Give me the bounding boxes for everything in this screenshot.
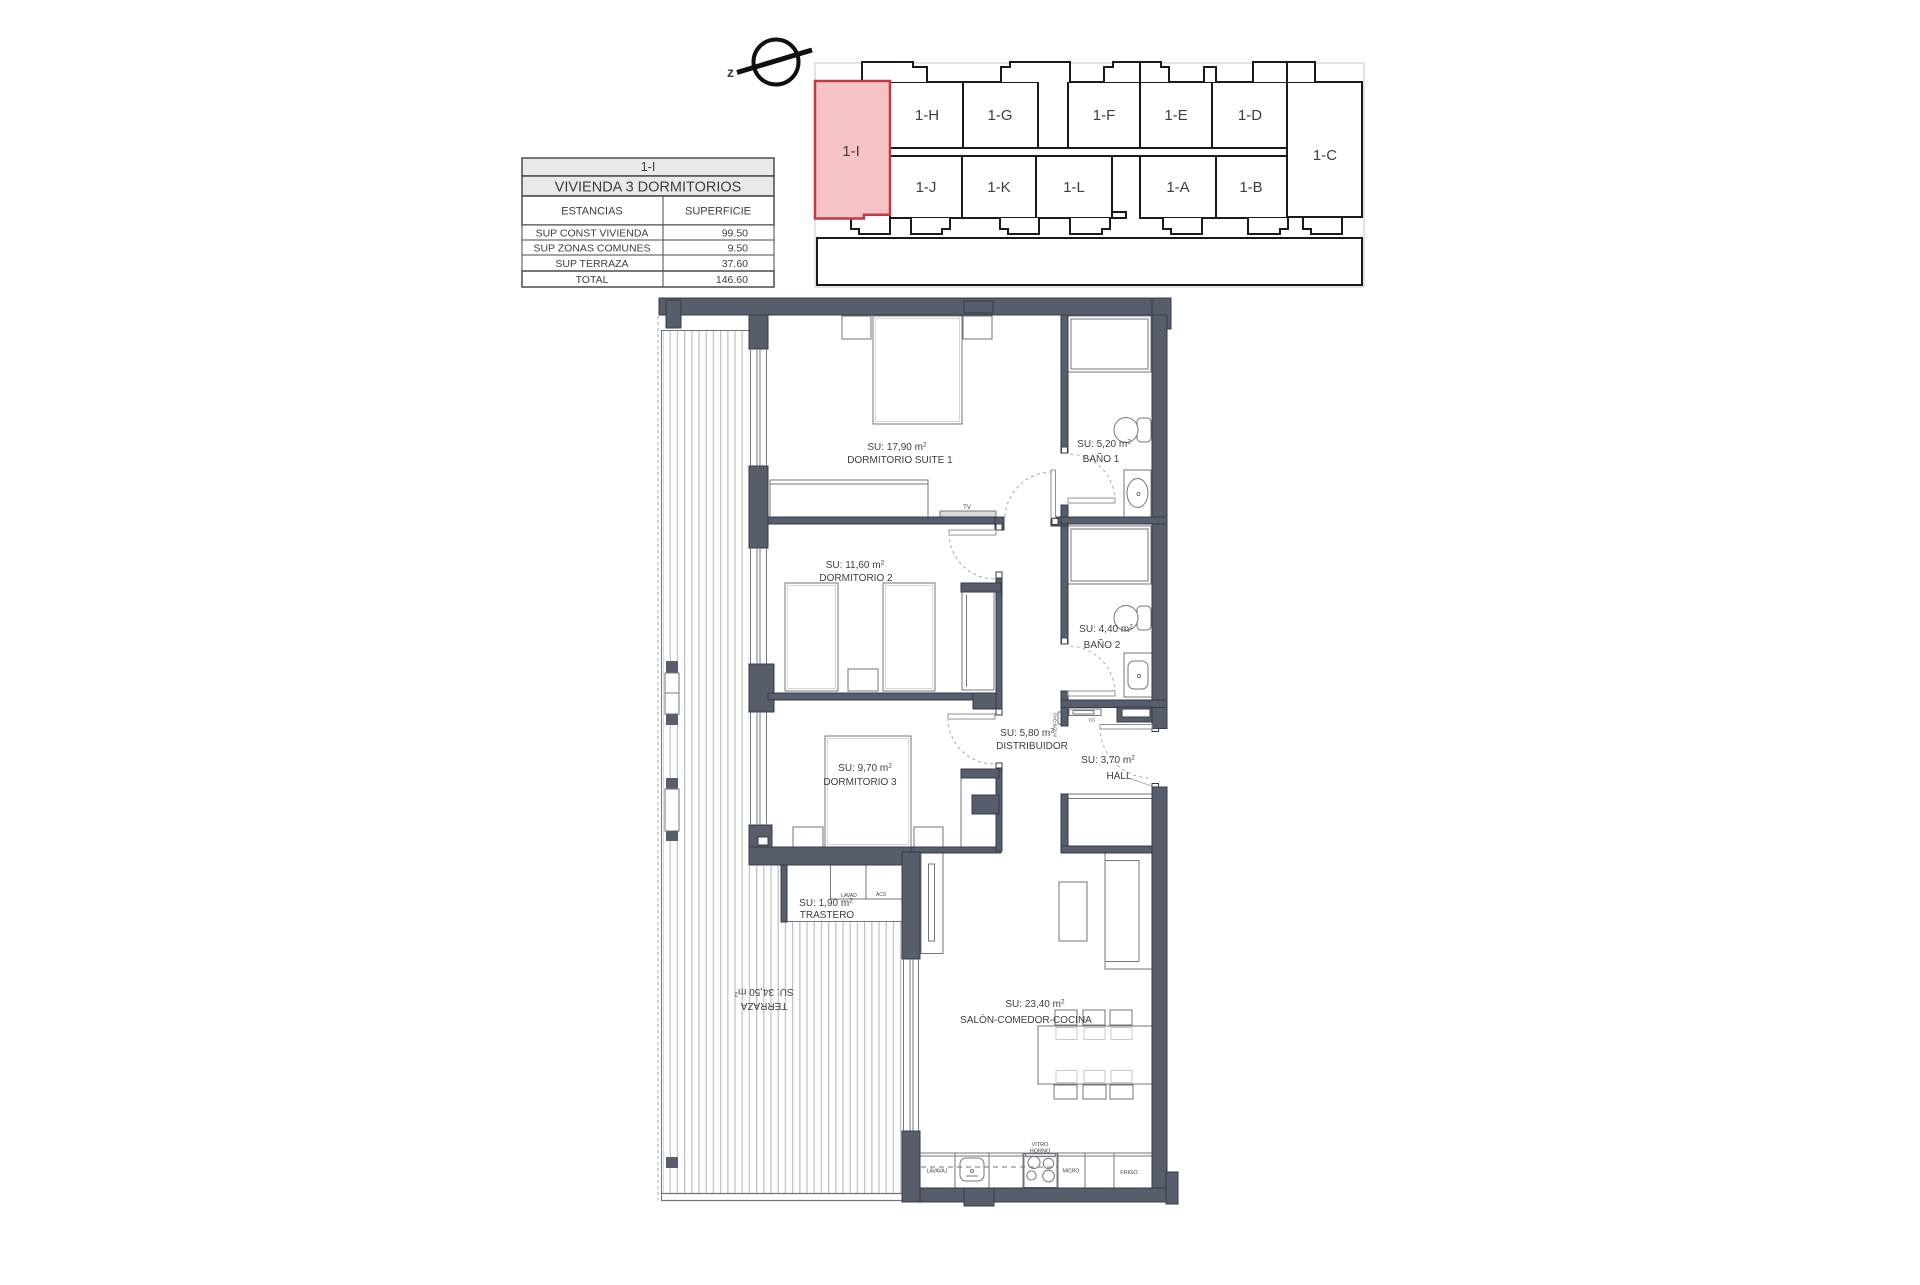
- svg-text:TRASTERO: TRASTERO: [800, 910, 855, 921]
- svg-text:ACS: ACS: [876, 892, 887, 898]
- svg-text:SU: 34,50 m2: SU: 34,50 m2: [734, 986, 794, 998]
- svg-text:1-A: 1-A: [1166, 179, 1189, 196]
- svg-text:z: z: [727, 64, 734, 80]
- svg-text:SU: 4,40 m2: SU: 4,40 m2: [1079, 624, 1133, 636]
- svg-text:TV: TV: [963, 505, 971, 511]
- svg-text:1-B: 1-B: [1239, 179, 1262, 196]
- svg-text:1-G: 1-G: [987, 107, 1012, 124]
- svg-text:HORNO: HORNO: [1030, 1149, 1051, 1155]
- svg-text:99.50: 99.50: [722, 228, 748, 240]
- svg-text:1-C: 1-C: [1313, 147, 1337, 164]
- svg-text:SALÓN-COMEDOR-COCINA: SALÓN-COMEDOR-COCINA: [960, 1013, 1092, 1026]
- svg-text:BAÑO 1: BAÑO 1: [1083, 452, 1120, 465]
- svg-text:9.50: 9.50: [728, 243, 749, 255]
- svg-text:SUP CONST VIVIENDA: SUP CONST VIVIENDA: [536, 228, 649, 240]
- svg-text:SU: 9,70 m2: SU: 9,70 m2: [838, 763, 892, 775]
- svg-text:FRIGO: FRIGO: [1120, 1170, 1138, 1176]
- svg-text:1-D: 1-D: [1238, 107, 1262, 124]
- svg-text:HALL: HALL: [1106, 771, 1131, 782]
- svg-text:LAVAD: LAVAD: [841, 893, 857, 899]
- svg-text:TOTAL: TOTAL: [576, 274, 609, 286]
- svg-text:1-E: 1-E: [1164, 107, 1187, 124]
- svg-text:DORMITORIO 2: DORMITORIO 2: [819, 573, 893, 584]
- svg-text:SU: 11,60 m2: SU: 11,60 m2: [826, 560, 885, 572]
- svg-text:MICRO: MICRO: [1063, 1169, 1080, 1175]
- svg-text:1-J: 1-J: [916, 179, 937, 196]
- svg-text:1-I: 1-I: [641, 160, 656, 174]
- svg-text:DORMITORIO SUITE 1: DORMITORIO SUITE 1: [847, 455, 953, 466]
- svg-text:CG: CG: [1089, 718, 1096, 723]
- svg-text:SU: 23,40 m2: SU: 23,40 m2: [1005, 999, 1065, 1011]
- svg-text:SU: 5,20 m2: SU: 5,20 m2: [1077, 439, 1131, 451]
- svg-text:SU: 5,80 m2: SU: 5,80 m2: [1000, 728, 1054, 740]
- svg-text:SU: 1,90 m2: SU: 1,90 m2: [799, 898, 853, 910]
- svg-text:1-F: 1-F: [1093, 107, 1116, 124]
- svg-text:SU: 17,90 m2: SU: 17,90 m2: [867, 442, 927, 454]
- svg-text:DISTRIBUIDOR: DISTRIBUIDOR: [996, 741, 1068, 752]
- svg-text:SUP ZONAS COMUNES: SUP ZONAS COMUNES: [533, 243, 650, 255]
- svg-text:SUPERFICIE: SUPERFICIE: [685, 206, 751, 218]
- svg-text:SUP TERRAZA: SUP TERRAZA: [555, 258, 628, 270]
- svg-text:LAVAVAJ: LAVAVAJ: [927, 1169, 948, 1175]
- svg-text:INTERFONO: INTERFONO: [1053, 712, 1058, 737]
- svg-text:TERRAZA: TERRAZA: [740, 1000, 787, 1011]
- svg-text:VITRO: VITRO: [1032, 1142, 1050, 1148]
- svg-text:1-H: 1-H: [915, 107, 939, 124]
- svg-text:37.60: 37.60: [722, 258, 748, 270]
- svg-text:SU: 3,70 m2: SU: 3,70 m2: [1081, 755, 1135, 767]
- svg-text:DORMITORIO 3: DORMITORIO 3: [823, 777, 897, 788]
- svg-text:BAÑO 2: BAÑO 2: [1084, 638, 1121, 651]
- svg-text:ESTANCIAS: ESTANCIAS: [561, 206, 623, 218]
- svg-text:146.60: 146.60: [716, 274, 748, 286]
- svg-text:1-I: 1-I: [842, 143, 860, 160]
- svg-text:1-K: 1-K: [987, 179, 1010, 196]
- svg-text:VIVIENDA 3 DORMITORIOS: VIVIENDA 3 DORMITORIOS: [555, 180, 742, 196]
- svg-text:1-L: 1-L: [1063, 179, 1085, 196]
